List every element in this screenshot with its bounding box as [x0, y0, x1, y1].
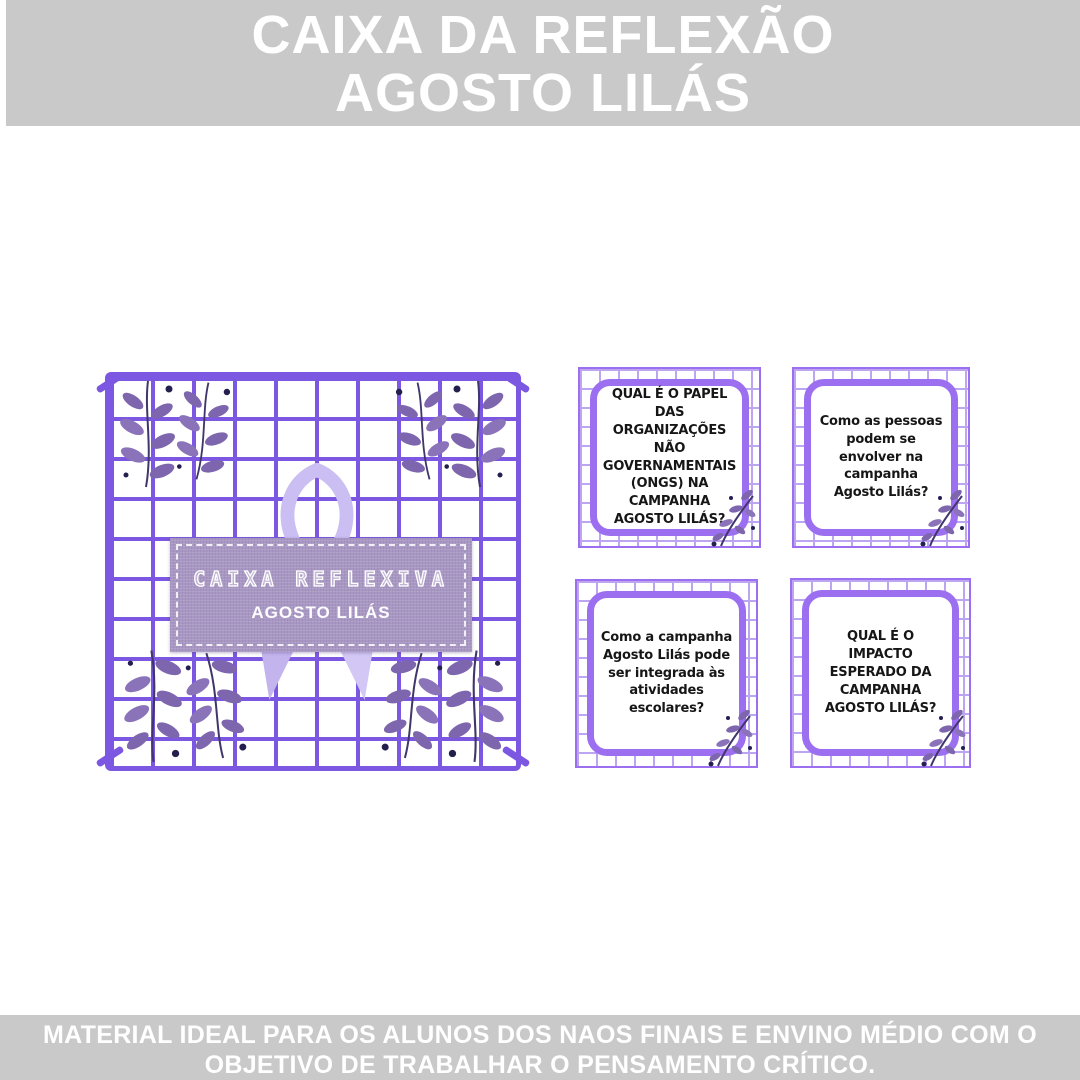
box-label-subtitle: AGOSTO LILÁS [251, 603, 390, 623]
question-card-3: Como a campanha Agosto Lilás pode ser in… [575, 579, 758, 768]
box-cover-preview: CAIXA REFLEXIVA AGOSTO LILÁS [105, 372, 521, 771]
stitch-border [176, 544, 466, 646]
card-question-text: QUAL É O IMPACTO ESPERADO DA CAMPANHA AG… [815, 628, 946, 718]
question-card-1: QUAL É O PAPEL DAS ORGANIZAÇÕES NÃO GOVE… [578, 367, 761, 548]
footer-banner: MATERIAL IDEAL PARA OS ALUNOS DOS NAOS F… [0, 1015, 1080, 1080]
question-card-2: Como as pessoas podem se envolver na cam… [792, 367, 970, 548]
box-label-title: CAIXA REFLEXIVA [193, 567, 449, 591]
leaf-icon [918, 486, 968, 548]
card-question-text: Como a campanha Agosto Lilás pode ser in… [600, 629, 733, 719]
box-label: CAIXA REFLEXIVA AGOSTO LILÁS [170, 538, 472, 652]
header-title-line2: AGOSTO LILÁS [6, 64, 1080, 122]
leaf-icon [919, 706, 969, 768]
flyer-page: CAIXA DA REFLEXÃO AGOSTO LILÁS [0, 0, 1080, 1080]
footer-text-line1: MATERIAL IDEAL PARA OS ALUNOS DOS NAOS F… [0, 1020, 1080, 1050]
footer-text-line2: OBJETIVO DE TRABALHAR O PENSAMENTO CRÍTI… [0, 1050, 1080, 1080]
header-title-line1: CAIXA DA REFLEXÃO [6, 6, 1080, 64]
leaf-icon [709, 486, 759, 548]
question-card-4: QUAL É O IMPACTO ESPERADO DA CAMPANHA AG… [790, 578, 971, 768]
leaf-decoration-icon [114, 379, 274, 497]
header-banner: CAIXA DA REFLEXÃO AGOSTO LILÁS [6, 0, 1080, 126]
leaf-icon [706, 706, 756, 768]
